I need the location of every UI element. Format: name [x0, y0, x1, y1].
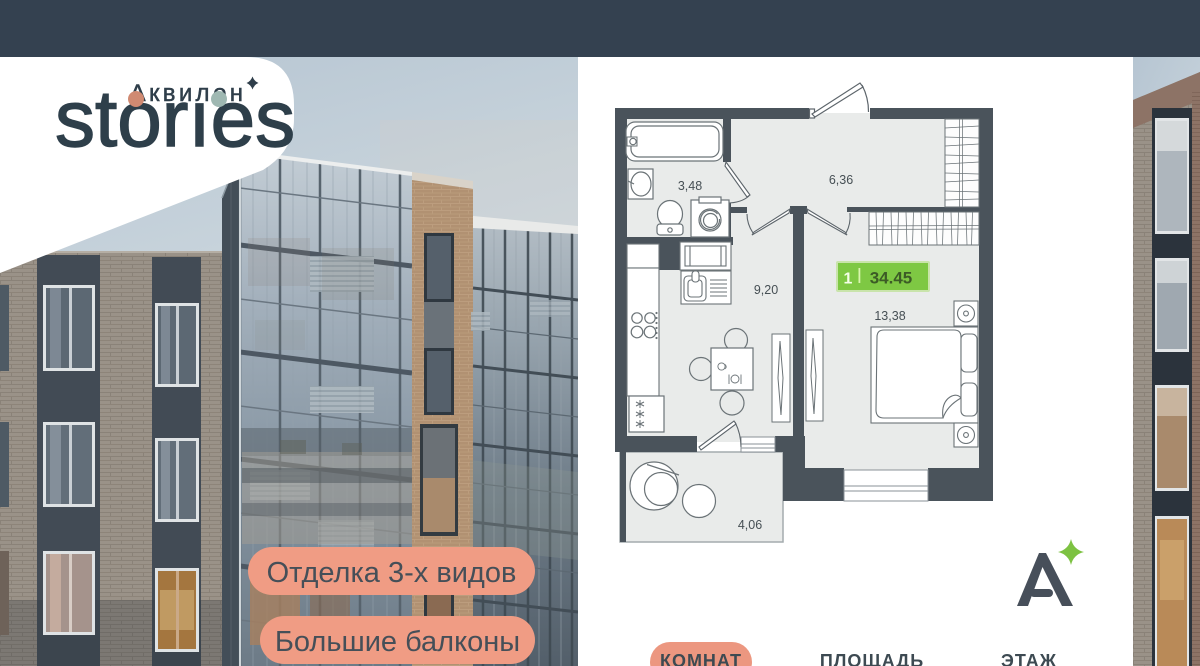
svg-text:Большие балконы: Большие балконы: [275, 626, 520, 658]
svg-text:Отделка 3-х видов: Отделка 3-х видов: [267, 557, 517, 589]
svg-text:1: 1: [844, 271, 853, 288]
svg-text:34.45: 34.45: [870, 269, 913, 288]
svg-text:3,48: 3,48: [678, 179, 702, 193]
svg-text:9,20: 9,20: [754, 283, 778, 297]
svg-text:storıes: storıes: [55, 74, 295, 163]
svg-text:ПЛОЩАДЬ: ПЛОЩАДЬ: [820, 651, 924, 666]
svg-text:ЭТАЖ: ЭТАЖ: [1001, 651, 1057, 666]
svg-text:4,06: 4,06: [738, 518, 762, 532]
svg-text:6,36: 6,36: [829, 173, 853, 187]
svg-text:13,38: 13,38: [874, 309, 905, 323]
svg-text:КОМНАТ: КОМНАТ: [660, 651, 742, 666]
